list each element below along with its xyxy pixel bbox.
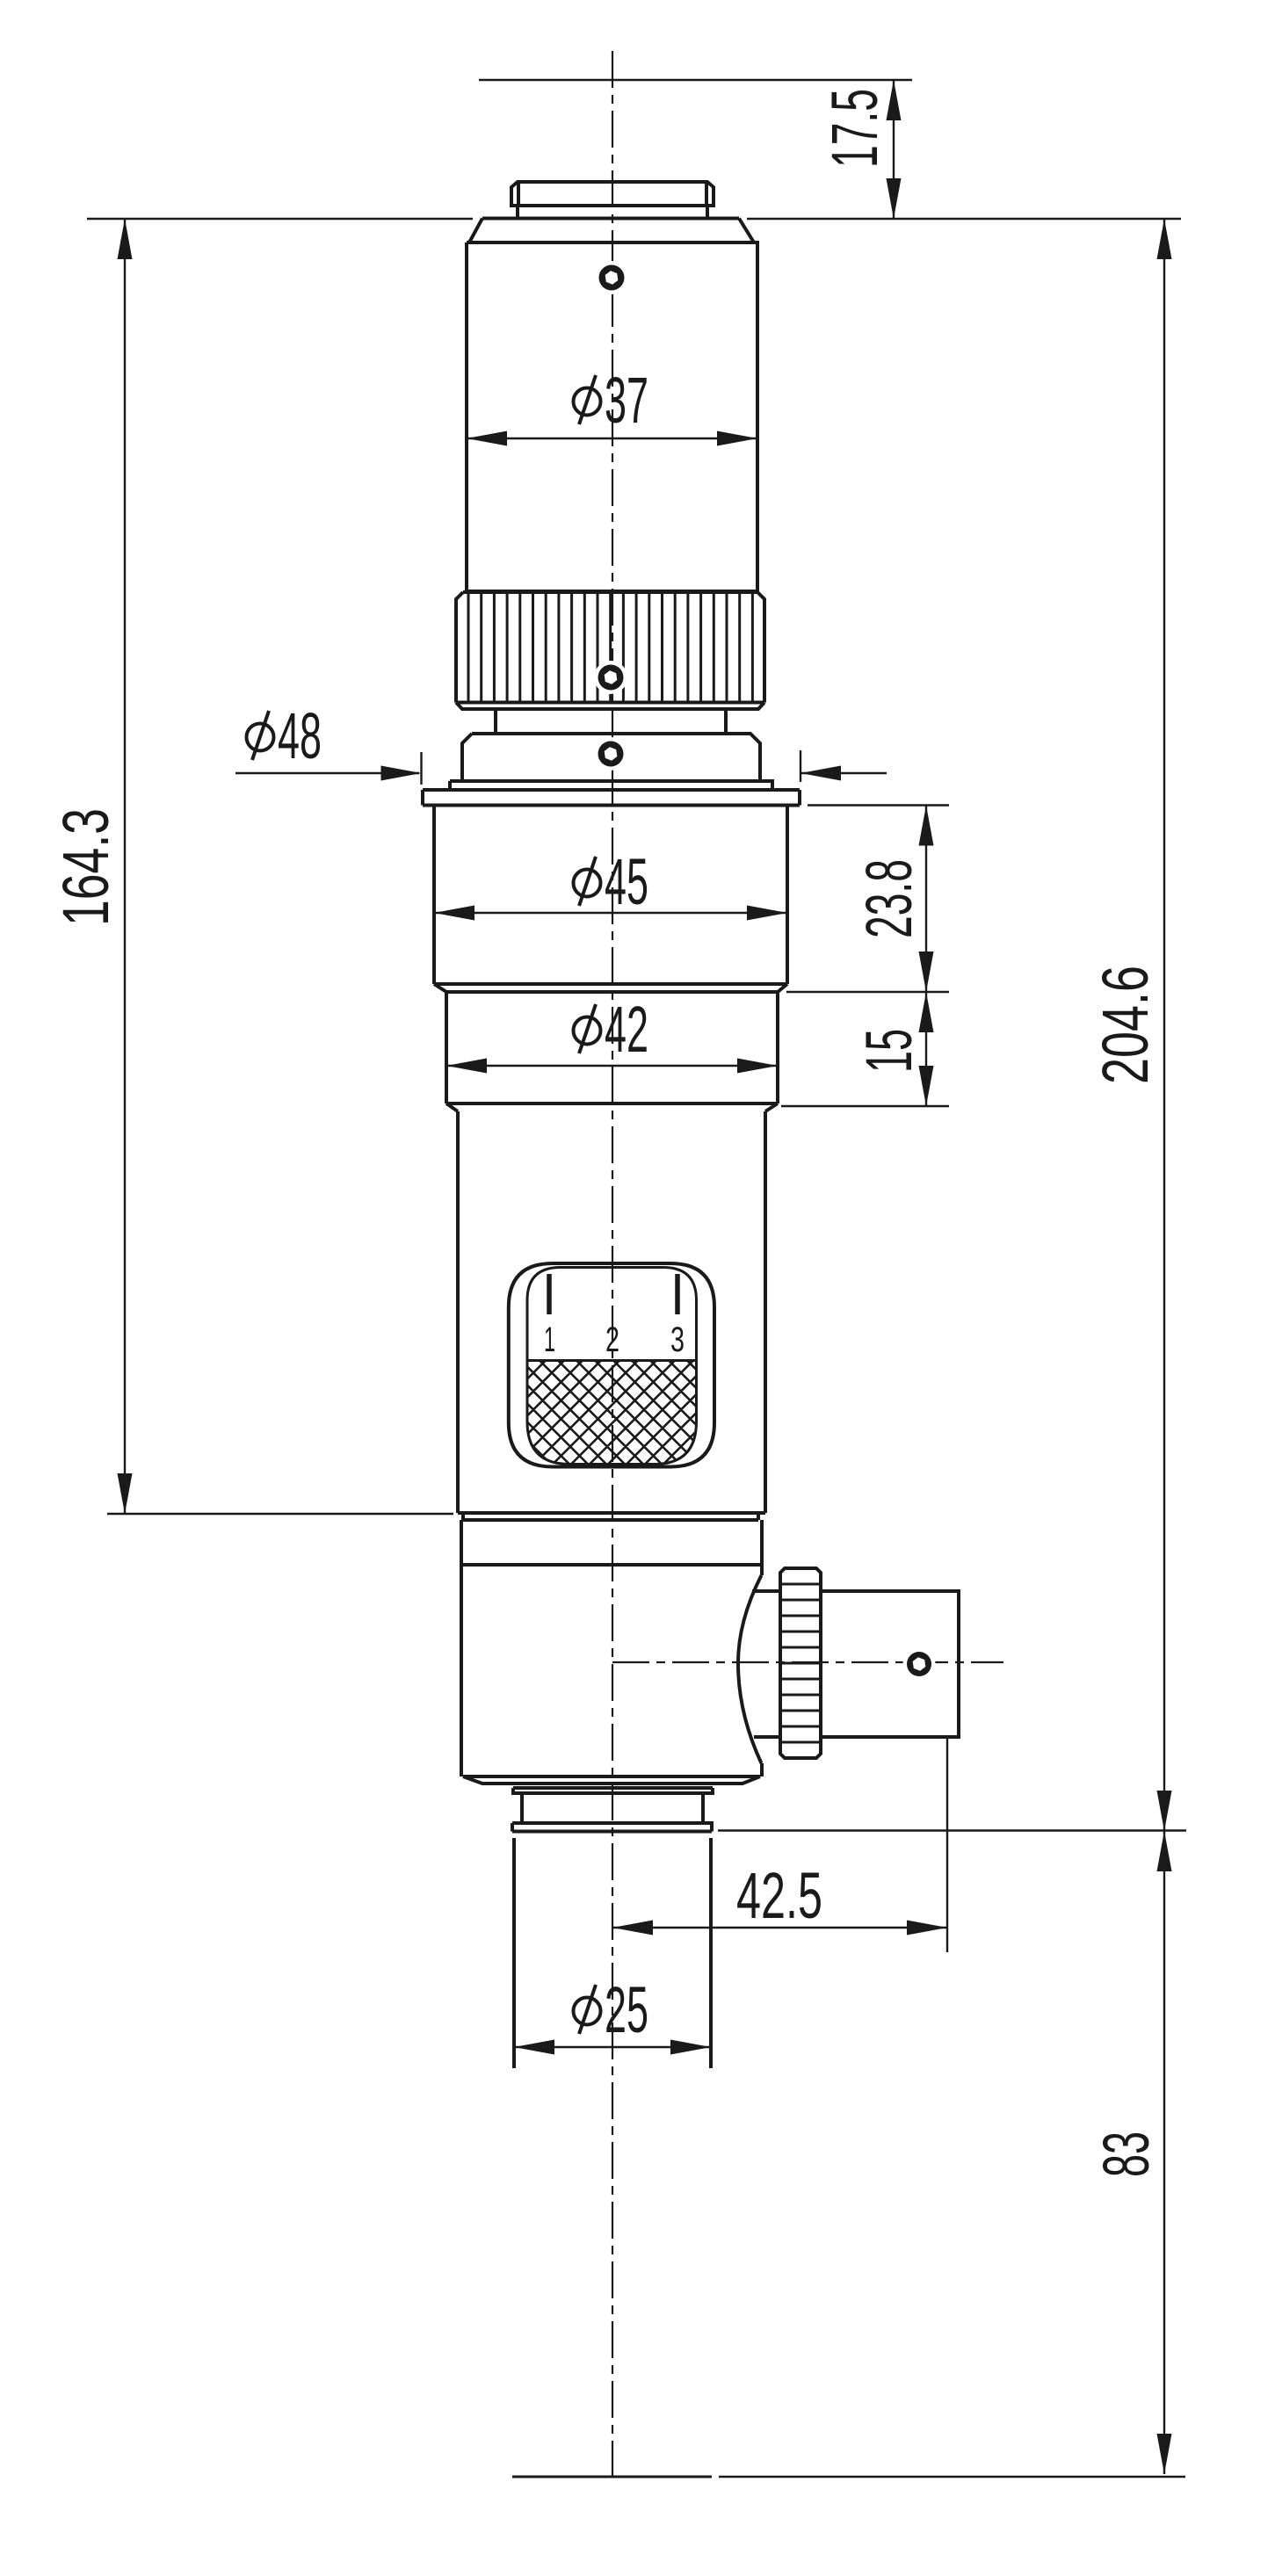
svg-text:42.5: 42.5 — [736, 1859, 822, 1932]
svg-text:1: 1 — [544, 1321, 555, 1359]
svg-text:42: 42 — [605, 993, 648, 1066]
svg-text:23.8: 23.8 — [852, 859, 925, 938]
svg-text:204.6: 204.6 — [1089, 966, 1162, 1084]
svg-text:164.3: 164.3 — [49, 808, 122, 926]
svg-text:15: 15 — [852, 1029, 925, 1073]
svg-text:2: 2 — [605, 1321, 619, 1359]
svg-text:25: 25 — [605, 1973, 648, 2046]
svg-text:17.5: 17.5 — [818, 89, 891, 168]
svg-text:37: 37 — [605, 364, 648, 437]
svg-text:83: 83 — [1090, 2131, 1163, 2177]
svg-text:48: 48 — [278, 699, 322, 772]
svg-text:45: 45 — [605, 845, 648, 918]
svg-text:3: 3 — [670, 1321, 685, 1359]
